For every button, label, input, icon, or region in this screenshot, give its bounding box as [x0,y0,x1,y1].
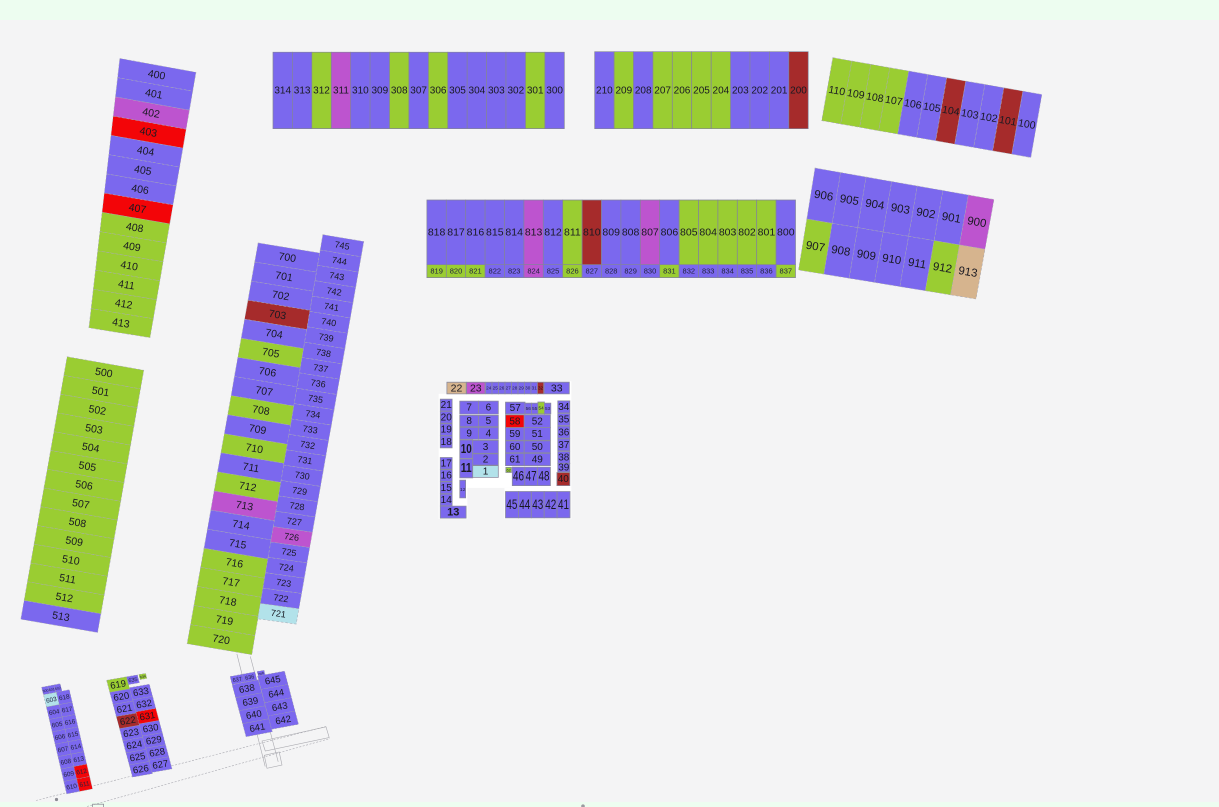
svg-text:823: 823 [508,267,521,276]
svg-text:314: 314 [274,86,291,97]
svg-text:55: 55 [532,406,538,411]
svg-text:44: 44 [519,497,530,512]
svg-text:833: 833 [702,267,715,276]
svg-text:33: 33 [551,382,563,394]
svg-text:9: 9 [466,429,472,440]
svg-text:800: 800 [777,227,795,239]
svg-text:306: 306 [430,86,447,97]
svg-text:13: 13 [447,507,459,519]
svg-text:205: 205 [693,85,710,96]
svg-text:34: 34 [558,402,570,413]
svg-text:307: 307 [410,86,427,97]
svg-text:826: 826 [566,267,579,276]
svg-text:31: 31 [532,386,538,391]
svg-text:56: 56 [526,406,532,411]
svg-text:202: 202 [751,85,768,96]
svg-text:47: 47 [526,468,537,483]
svg-text:208: 208 [635,85,652,96]
svg-text:24: 24 [486,386,492,391]
svg-text:808: 808 [622,227,640,239]
svg-text:4: 4 [486,429,492,440]
svg-text:810: 810 [583,227,601,239]
svg-text:816: 816 [467,227,485,239]
svg-text:824: 824 [527,267,540,276]
svg-text:18: 18 [441,437,453,448]
svg-text:312: 312 [313,86,330,97]
svg-text:28: 28 [512,386,518,391]
svg-text:300: 300 [546,86,563,97]
svg-text:46: 46 [513,468,524,483]
svg-text:804: 804 [699,227,717,239]
svg-text:20: 20 [441,413,453,424]
svg-text:304: 304 [469,86,486,97]
svg-text:832: 832 [683,267,696,276]
svg-text:30: 30 [525,386,531,391]
svg-text:53: 53 [545,406,551,411]
svg-text:25: 25 [493,386,499,391]
svg-text:16: 16 [441,471,453,482]
svg-text:8: 8 [466,416,472,427]
svg-text:58: 58 [509,416,521,427]
svg-text:7: 7 [466,403,472,414]
svg-text:301: 301 [527,86,544,97]
svg-text:801: 801 [758,227,776,239]
svg-text:60: 60 [509,442,521,453]
svg-text:3: 3 [483,442,489,453]
svg-text:819: 819 [430,267,443,276]
svg-text:200: 200 [790,85,807,96]
svg-text:834: 834 [721,267,734,276]
svg-text:723: 723 [276,577,292,589]
svg-text:310: 310 [352,86,369,97]
svg-text:204: 204 [713,85,730,96]
svg-text:15: 15 [441,483,453,494]
svg-text:814: 814 [505,227,523,239]
svg-text:803: 803 [719,227,737,239]
svg-text:203: 203 [732,85,749,96]
svg-text:42: 42 [545,497,556,512]
svg-text:807: 807 [641,227,659,239]
svg-text:51: 51 [532,429,544,440]
svg-text:206: 206 [674,85,691,96]
svg-text:817: 817 [447,227,465,239]
svg-text:2: 2 [483,455,489,466]
svg-text:313: 313 [294,86,311,97]
svg-text:11: 11 [461,461,472,475]
svg-text:1: 1 [483,467,489,478]
svg-text:22: 22 [451,382,463,394]
svg-text:21: 21 [441,400,453,411]
svg-text:813: 813 [525,227,543,239]
svg-text:815: 815 [486,227,504,239]
svg-text:812: 812 [544,227,562,239]
svg-text:836: 836 [760,267,773,276]
svg-text:825: 825 [547,267,560,276]
svg-text:5: 5 [486,416,492,427]
svg-text:43: 43 [532,497,543,512]
svg-text:62: 62 [506,468,510,472]
svg-text:821: 821 [469,267,482,276]
svg-text:32: 32 [538,386,544,391]
svg-text:828: 828 [605,267,618,276]
svg-text:23: 23 [470,382,482,394]
svg-text:6: 6 [486,403,492,414]
svg-text:37: 37 [558,440,570,451]
svg-text:806: 806 [661,227,679,239]
svg-text:830: 830 [644,267,657,276]
svg-text:14: 14 [441,495,453,506]
svg-text:805: 805 [680,227,698,239]
svg-text:36: 36 [558,427,570,438]
svg-text:829: 829 [624,267,637,276]
svg-text:45: 45 [506,497,517,512]
svg-text:27: 27 [506,386,512,391]
svg-text:41: 41 [558,497,569,512]
svg-text:201: 201 [771,85,788,96]
svg-text:818: 818 [428,227,446,239]
svg-text:207: 207 [654,85,671,96]
svg-text:12: 12 [460,487,466,493]
svg-text:209: 209 [615,85,632,96]
svg-text:722: 722 [273,592,289,604]
svg-text:820: 820 [450,267,463,276]
svg-text:831: 831 [663,267,676,276]
svg-text:59: 59 [509,429,521,440]
svg-text:721: 721 [270,608,286,620]
svg-text:302: 302 [507,86,524,97]
svg-text:309: 309 [371,86,388,97]
svg-text:837: 837 [780,267,793,276]
svg-text:210: 210 [596,85,613,96]
svg-text:822: 822 [489,267,502,276]
svg-text:724: 724 [278,562,294,574]
svg-text:29: 29 [519,386,525,391]
svg-text:39: 39 [558,463,570,474]
svg-text:61: 61 [509,455,521,466]
svg-text:40: 40 [558,474,570,485]
svg-text:49: 49 [532,455,544,466]
svg-text:809: 809 [602,227,620,239]
svg-text:802: 802 [738,227,756,239]
svg-text:50: 50 [532,442,544,453]
svg-text:725: 725 [281,546,297,558]
svg-text:811: 811 [564,227,581,239]
svg-text:10: 10 [461,442,472,456]
svg-text:17: 17 [441,459,453,470]
svg-text:35: 35 [558,415,570,426]
svg-text:308: 308 [391,86,408,97]
svg-text:827: 827 [586,267,599,276]
svg-text:305: 305 [449,86,466,97]
svg-text:303: 303 [488,86,505,97]
svg-text:54: 54 [539,406,545,411]
svg-text:835: 835 [741,267,754,276]
svg-text:57: 57 [510,403,522,414]
svg-text:26: 26 [499,386,505,391]
svg-text:311: 311 [333,86,349,97]
svg-text:19: 19 [441,425,453,436]
svg-text:48: 48 [539,468,550,483]
svg-text:52: 52 [532,416,544,427]
